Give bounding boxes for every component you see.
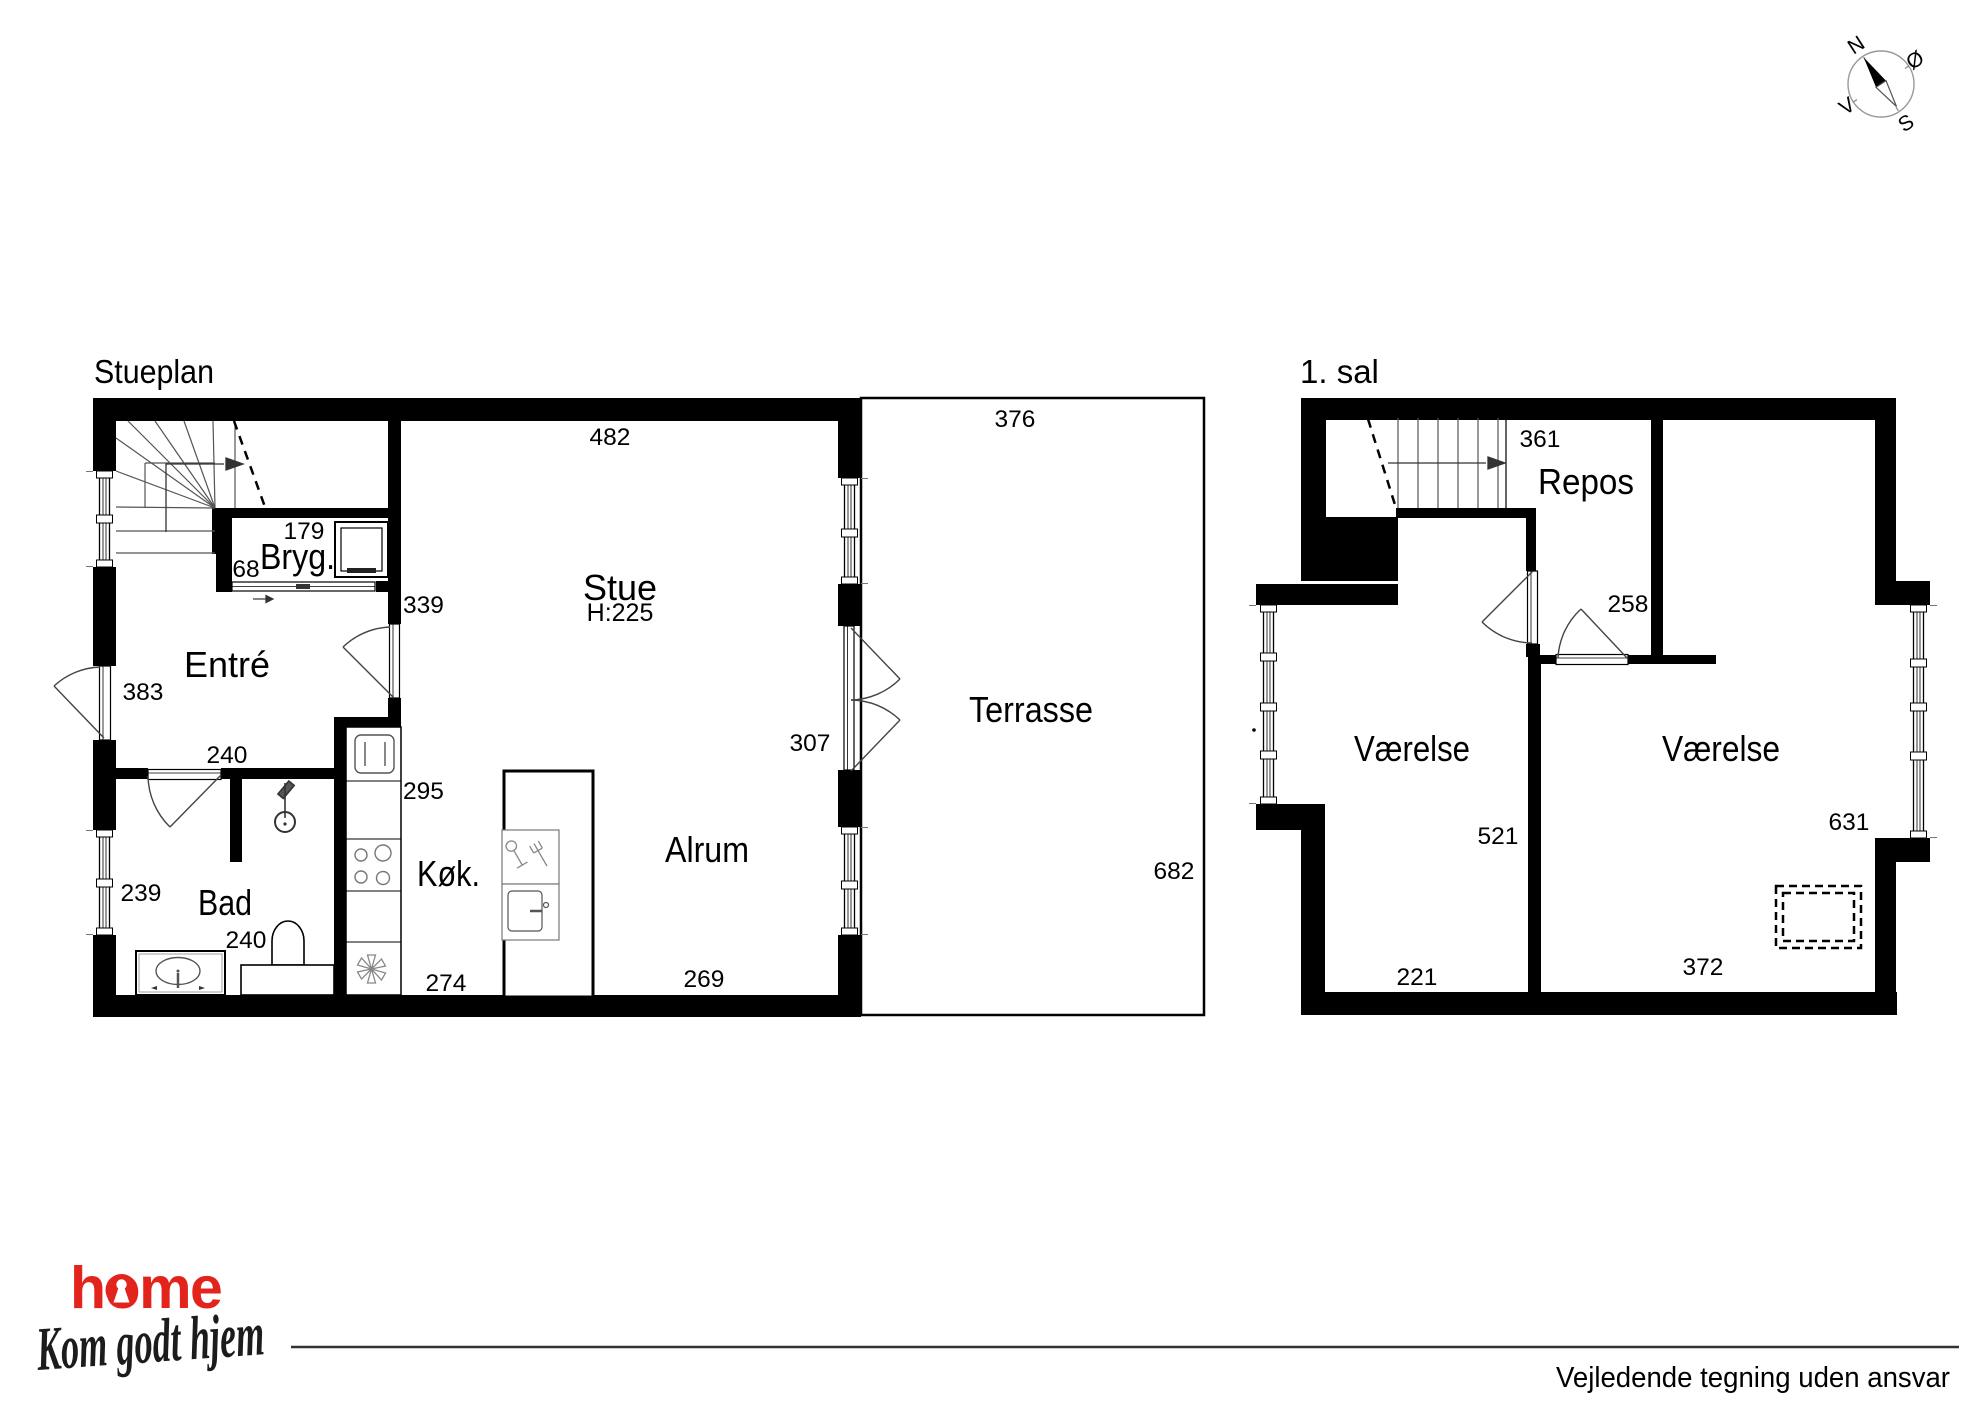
svg-text:521: 521 — [1478, 823, 1519, 850]
svg-text:1. sal: 1. sal — [1300, 353, 1379, 390]
svg-text:482: 482 — [590, 424, 631, 451]
svg-text:Bad: Bad — [198, 882, 252, 923]
svg-text:Bryg.: Bryg. — [260, 536, 335, 577]
svg-text:258: 258 — [1608, 591, 1649, 618]
svg-text:68: 68 — [232, 556, 259, 583]
svg-text:295: 295 — [403, 778, 444, 805]
svg-text:307: 307 — [790, 730, 831, 757]
svg-text:Alrum: Alrum — [665, 829, 749, 870]
svg-text:Stueplan: Stueplan — [94, 353, 214, 390]
svg-text:Terrasse: Terrasse — [969, 689, 1093, 730]
svg-text:221: 221 — [1397, 964, 1438, 991]
svg-text:376: 376 — [995, 406, 1036, 433]
svg-text:372: 372 — [1683, 954, 1724, 981]
svg-text:Entré: Entré — [184, 644, 270, 685]
svg-text:631: 631 — [1829, 809, 1870, 836]
svg-text:239: 239 — [121, 880, 162, 907]
svg-text:682: 682 — [1154, 858, 1195, 885]
svg-text:Repos: Repos — [1538, 461, 1634, 502]
svg-text:240: 240 — [207, 742, 248, 769]
svg-text:Køk.: Køk. — [417, 853, 480, 894]
svg-text:Vejledende tegning uden ansvar: Vejledende tegning uden ansvar — [1556, 1362, 1950, 1394]
svg-text:383: 383 — [123, 679, 164, 706]
svg-text:Værelse: Værelse — [1662, 728, 1780, 769]
svg-text:H:225: H:225 — [587, 599, 654, 627]
svg-text:240: 240 — [226, 927, 267, 954]
svg-text:361: 361 — [1520, 426, 1561, 453]
svg-text:339: 339 — [403, 592, 444, 619]
svg-text:274: 274 — [426, 970, 467, 997]
svg-text:Værelse: Værelse — [1354, 728, 1470, 769]
svg-text:269: 269 — [684, 966, 725, 993]
